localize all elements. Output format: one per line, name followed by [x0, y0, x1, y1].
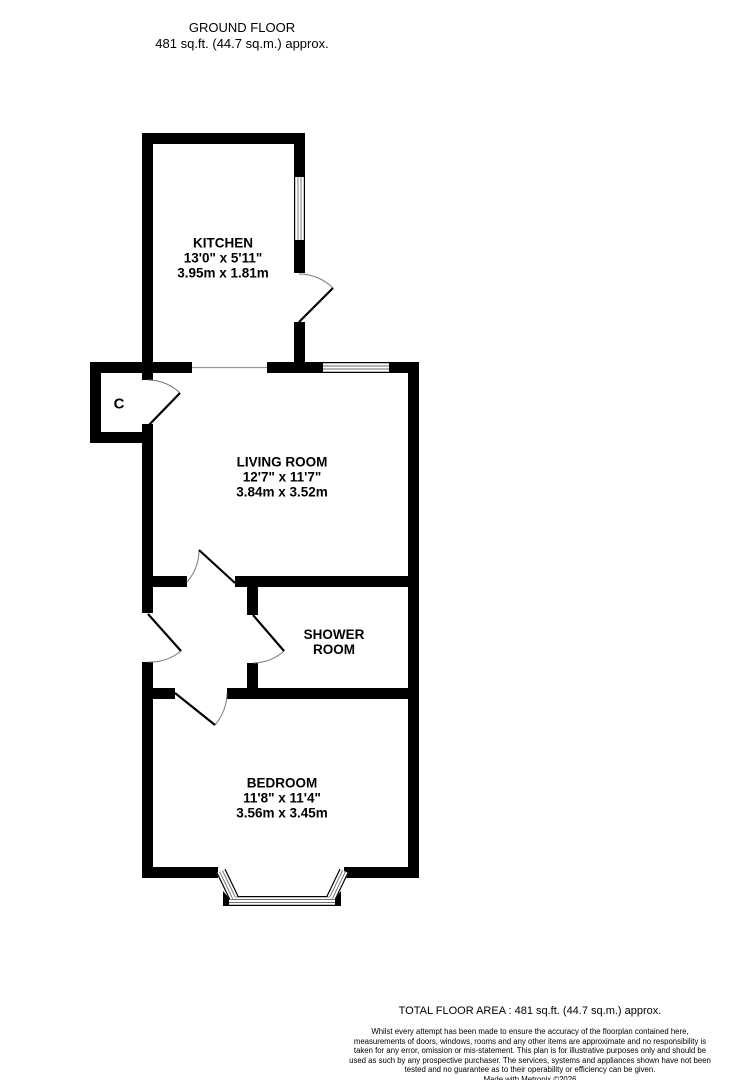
shower-room-door-leaf: [253, 615, 284, 651]
wall: [344, 867, 419, 878]
room-label-bedroom: BEDROOM11'8" x 11'4"3.56m x 3.45m: [236, 776, 328, 821]
room-label-line: 3.56m x 3.45m: [236, 806, 328, 821]
wall: [294, 240, 305, 273]
wall: [408, 362, 419, 878]
floorplan-page: GROUND FLOOR 481 sq.ft. (44.7 sq.m.) app…: [0, 0, 741, 1080]
cupboard-door-swing-arc: [148, 380, 180, 393]
room-label-line: 11'8" x 11'4": [236, 791, 328, 806]
room-label-living-room: LIVING ROOM12'7" x 11'7"3.84m x 3.52m: [236, 455, 328, 500]
wall: [142, 576, 187, 587]
wall: [142, 373, 153, 380]
kitchen-door-swing-arc: [299, 274, 333, 288]
floorplan-svg: [0, 0, 741, 1080]
wall: [90, 432, 153, 443]
wall: [294, 133, 305, 177]
room-label-cupboard: C: [114, 397, 125, 412]
wall: [142, 443, 153, 613]
wall: [235, 576, 419, 587]
room-label-line: ROOM: [304, 642, 365, 657]
wall: [247, 587, 258, 615]
wall: [153, 362, 192, 373]
room-label-line: BEDROOM: [236, 776, 328, 791]
kitchen-door-leaf: [299, 288, 333, 322]
bedroom-door-leaf: [175, 693, 215, 725]
room-label-shower-room: SHOWERROOM: [304, 627, 365, 657]
shower-room-door-swing-arc: [253, 651, 284, 663]
wall: [142, 133, 153, 373]
room-label-line: C: [114, 397, 125, 412]
wall: [90, 362, 101, 443]
room-label-line: SHOWER: [304, 627, 365, 642]
room-label-line: KITCHEN: [177, 236, 269, 251]
room-label-line: 13'0" x 5'11": [177, 251, 269, 266]
wall: [247, 663, 258, 688]
wall: [305, 362, 323, 373]
wall: [294, 322, 305, 373]
bedroom-door-swing-arc: [215, 693, 227, 725]
room-label-line: LIVING ROOM: [236, 455, 328, 470]
wall: [267, 362, 294, 373]
room-label-line: 3.84m x 3.52m: [236, 485, 328, 500]
living-room-door-leaf: [199, 550, 235, 583]
entrance-door-leaf: [148, 614, 181, 651]
wall: [227, 688, 419, 699]
wall: [142, 867, 218, 878]
wall: [142, 133, 305, 144]
cupboard-door-leaf: [148, 393, 180, 426]
entrance-door-swing-arc: [148, 651, 181, 662]
room-label-line: 12'7" x 11'7": [236, 470, 328, 485]
total-floor-area: TOTAL FLOOR AREA : 481 sq.ft. (44.7 sq.m…: [346, 1005, 714, 1018]
disclaimer-text: Whilst every attempt has been made to en…: [346, 1027, 714, 1075]
credit-text: Made with Metropix ©2026: [346, 1075, 714, 1080]
plan-footer: TOTAL FLOOR AREA : 481 sq.ft. (44.7 sq.m…: [346, 1005, 714, 1080]
living-room-door-swing-arc: [187, 550, 199, 582]
room-label-line: 3.95m x 1.81m: [177, 266, 269, 281]
wall: [142, 688, 175, 699]
room-label-kitchen: KITCHEN13'0" x 5'11"3.95m x 1.81m: [177, 236, 269, 281]
